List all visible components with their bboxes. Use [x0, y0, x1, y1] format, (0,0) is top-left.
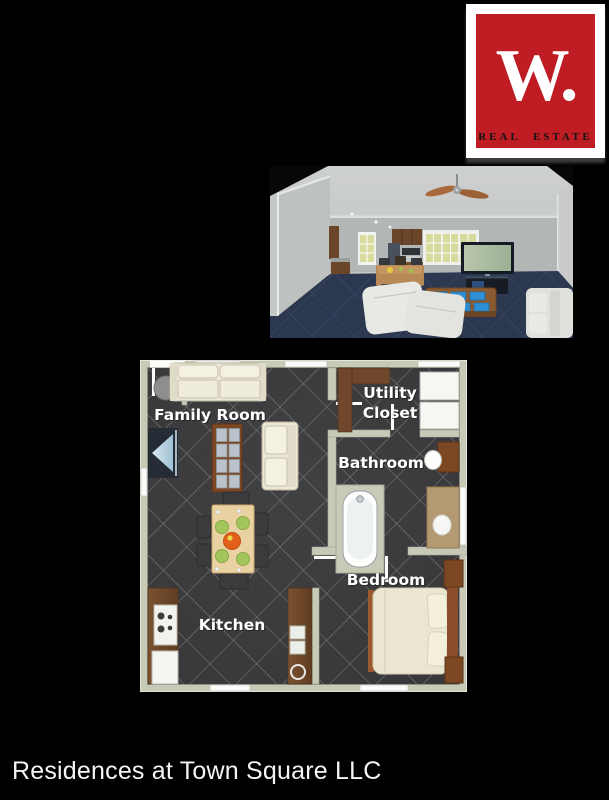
- bathtub: [336, 485, 384, 573]
- property-title: Residences at Town Square LLC: [12, 757, 381, 786]
- logo-red-field: W. REAL ESTATE: [476, 14, 595, 148]
- interior-render-graphic: [270, 166, 573, 338]
- logo-caption: REAL ESTATE: [478, 131, 592, 148]
- stove: [154, 605, 177, 645]
- right-wall: [558, 180, 573, 288]
- floor-plan-graphic: Family Room Utility Closet Bathroom Bedr…: [140, 360, 467, 692]
- room-label-utility: Utility: [363, 384, 416, 402]
- washer-dryer: [420, 372, 459, 429]
- interior-render-photo: [270, 166, 573, 338]
- room-label-closet: Closet: [363, 404, 418, 422]
- brand-logo: W. REAL ESTATE: [466, 4, 605, 158]
- bookshelf: [212, 424, 242, 492]
- wall-tv: [148, 428, 178, 478]
- room-label-bathroom: Bathroom: [338, 454, 424, 472]
- floor-plan: Family Room Utility Closet Bathroom Bedr…: [140, 360, 467, 692]
- centerpiece-bowl: [224, 533, 241, 550]
- tv-screen: [464, 245, 511, 271]
- vanity: [427, 487, 459, 548]
- loveseat: [262, 422, 298, 490]
- side-sofa: [526, 288, 573, 338]
- flyer-page: W. REAL ESTATE: [0, 0, 609, 800]
- fridge-plan: [152, 651, 178, 684]
- kitchen-counter-left: [148, 588, 178, 684]
- room-label-bedroom: Bedroom: [347, 571, 426, 589]
- kitchen-counter-right: [288, 588, 312, 684]
- dresser-top: [444, 560, 463, 587]
- family-room-sofa: [170, 363, 266, 401]
- room-label-kitchen: Kitchen: [199, 616, 266, 634]
- dresser-bottom: [445, 657, 463, 683]
- window-left: [358, 232, 376, 265]
- room-label-family-room: Family Room: [154, 406, 266, 424]
- logo-monogram: W.: [496, 14, 576, 131]
